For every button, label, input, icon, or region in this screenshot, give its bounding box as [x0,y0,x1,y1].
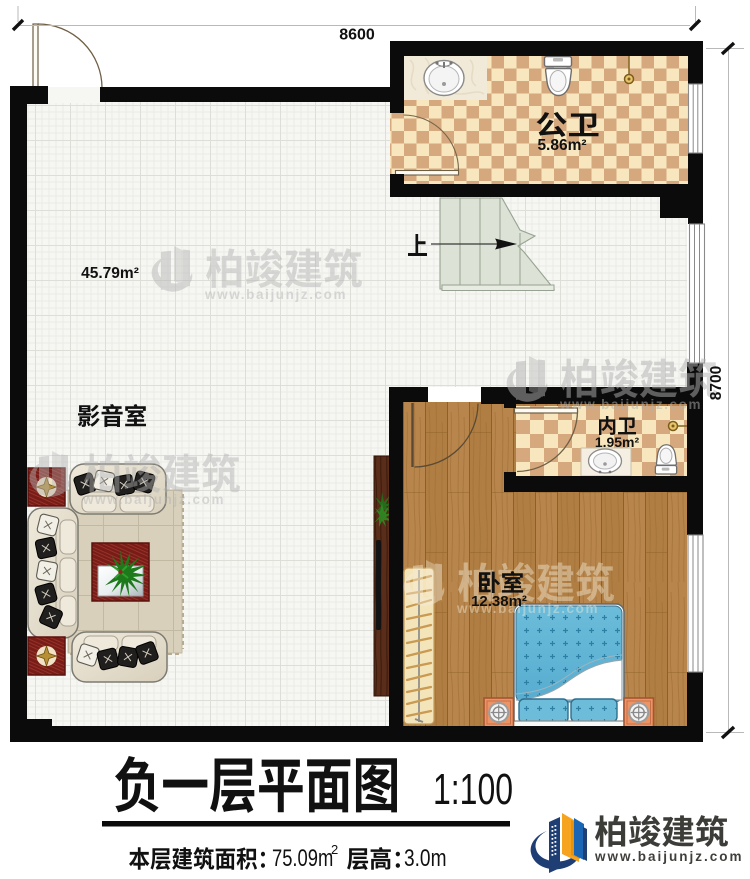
svg-text:45.79m²: 45.79m² [81,265,139,282]
svg-text:5.86m²: 5.86m² [537,137,586,154]
svg-text:1:100: 1:100 [433,765,513,814]
svg-text:8600: 8600 [339,27,375,44]
svg-text:2: 2 [331,842,338,857]
svg-text:8700: 8700 [708,366,725,400]
svg-text:www.baijunjz.com: www.baijunjz.com [594,849,744,864]
svg-text:1.95m²: 1.95m² [595,434,640,450]
svg-text:75.09m: 75.09m [272,843,333,871]
svg-text:3.0m: 3.0m [404,844,446,872]
svg-text:12.38m²: 12.38m² [471,593,527,610]
